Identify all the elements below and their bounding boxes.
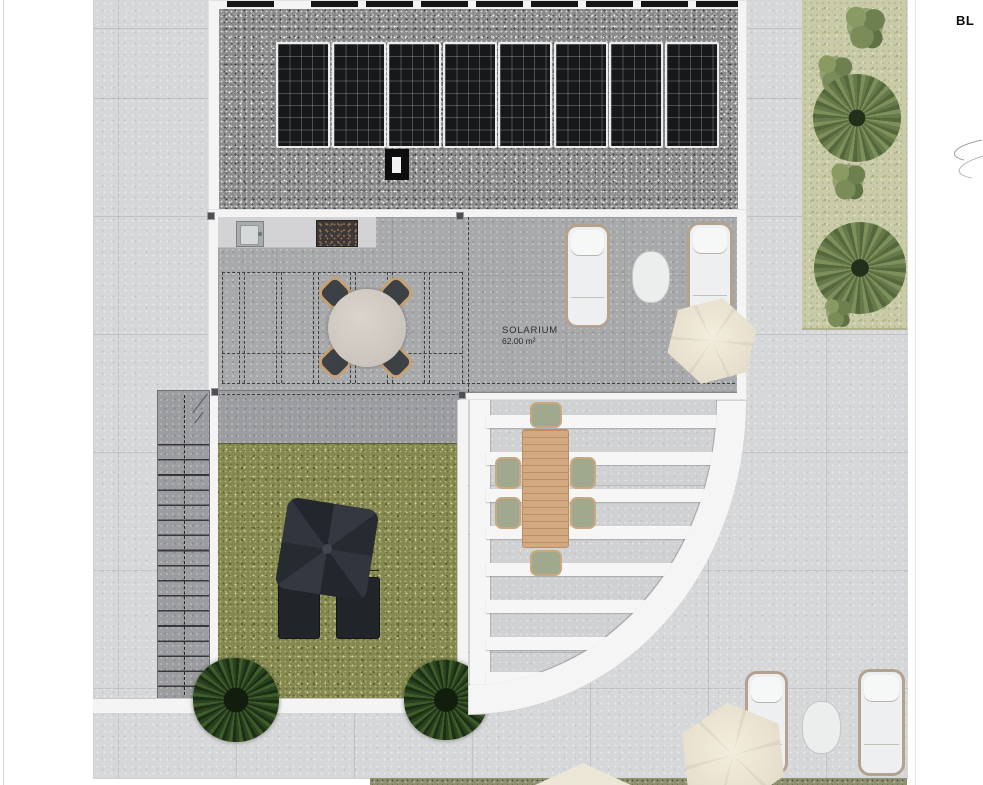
- ornamental-grass: [193, 658, 279, 742]
- round-table: [328, 289, 406, 367]
- side-table: [632, 251, 670, 303]
- solar-panel: [609, 42, 663, 148]
- staircase: [157, 390, 210, 700]
- solar-panel: [443, 42, 497, 148]
- sink-faucet-icon: [258, 232, 262, 236]
- dining-chair: [570, 457, 596, 489]
- dining-chair: [530, 550, 562, 576]
- solarium-label-group: SOLARIUM 62.00 m²: [502, 326, 558, 347]
- palm-plant-icon: [813, 74, 901, 162]
- projection-dash: [222, 272, 462, 273]
- solar-panel: [276, 42, 330, 148]
- projection-dash: [429, 272, 430, 383]
- pergola-louver: [486, 600, 717, 613]
- solarium: SOLARIUM 62.00 m²: [208, 209, 747, 400]
- pergola-louver: [486, 672, 717, 685]
- stair-landing-arrow: [194, 412, 203, 424]
- solar-panel-stub: [586, 1, 633, 8]
- dining-chair: [570, 497, 596, 529]
- projection-dash: [276, 272, 277, 383]
- projection-dash: [222, 383, 735, 384]
- dining-table: [522, 429, 569, 548]
- solar-panel-stub: [366, 1, 413, 8]
- solar-panel: [498, 42, 552, 148]
- block-label: BL: [956, 13, 974, 28]
- projection-dash: [313, 272, 314, 383]
- shrub-icon: [818, 292, 858, 332]
- solar-panel-stub: [531, 1, 578, 8]
- pergola-louver: [486, 563, 717, 576]
- roof-hatch-slot: [392, 157, 401, 173]
- sun-lounger: [858, 669, 905, 776]
- projection-dash: [424, 272, 425, 383]
- pergola-floor: [468, 400, 717, 685]
- solar-panel-stub: [227, 1, 274, 8]
- corner-node: [211, 388, 219, 396]
- pergola-louver: [486, 489, 717, 502]
- solar-panel: [332, 42, 386, 148]
- page-frame-left-line: [3, 0, 4, 785]
- solarium-floor: SOLARIUM 62.00 m²: [218, 217, 737, 393]
- projection-dash: [244, 272, 245, 383]
- solar-panel: [387, 42, 441, 148]
- projection-dash: [281, 272, 282, 383]
- dining-chair: [530, 402, 562, 428]
- stair-landing-arrow: [192, 394, 208, 414]
- corner-node: [458, 391, 466, 399]
- solar-panel-stub: [696, 1, 738, 8]
- pergola-louver: [486, 526, 717, 539]
- roof-hatch: [385, 149, 409, 180]
- roof: [208, 0, 747, 217]
- bbq-grill: [316, 220, 358, 247]
- pergola-louver: [486, 415, 717, 428]
- planting-strip: [802, 0, 907, 330]
- sink-basin: [240, 225, 259, 245]
- section-divider-dash: [468, 217, 469, 392]
- solar-panel: [665, 42, 719, 148]
- corner-node: [207, 212, 215, 220]
- floor-plan: SOLARIUM 62.00 m²: [0, 0, 983, 785]
- dining-chair: [495, 457, 521, 489]
- sun-lounger: [565, 224, 610, 328]
- side-table: [802, 701, 841, 754]
- shrub-icon: [822, 154, 874, 206]
- solar-panel-stub: [421, 1, 468, 8]
- pergola-louver: [486, 637, 717, 650]
- kitchen-sink: [236, 221, 264, 247]
- projection-dash: [222, 272, 223, 383]
- projection-dash: [462, 272, 463, 383]
- projection-dash: [239, 272, 240, 383]
- page-frame-right-line: [915, 0, 916, 785]
- hedge-strip: [370, 778, 907, 785]
- black-umbrella: [274, 496, 379, 601]
- solar-panel: [554, 42, 608, 148]
- solar-panel-stub: [641, 1, 688, 8]
- solarium-area-value: 62.00 m²: [502, 337, 558, 347]
- solar-panel-stub: [476, 1, 523, 8]
- corner-node: [456, 212, 464, 220]
- dining-chair: [495, 497, 521, 529]
- stair-direction-line: [184, 395, 185, 695]
- solar-panel-stub: [311, 1, 358, 8]
- leader-line-icon: [940, 132, 983, 187]
